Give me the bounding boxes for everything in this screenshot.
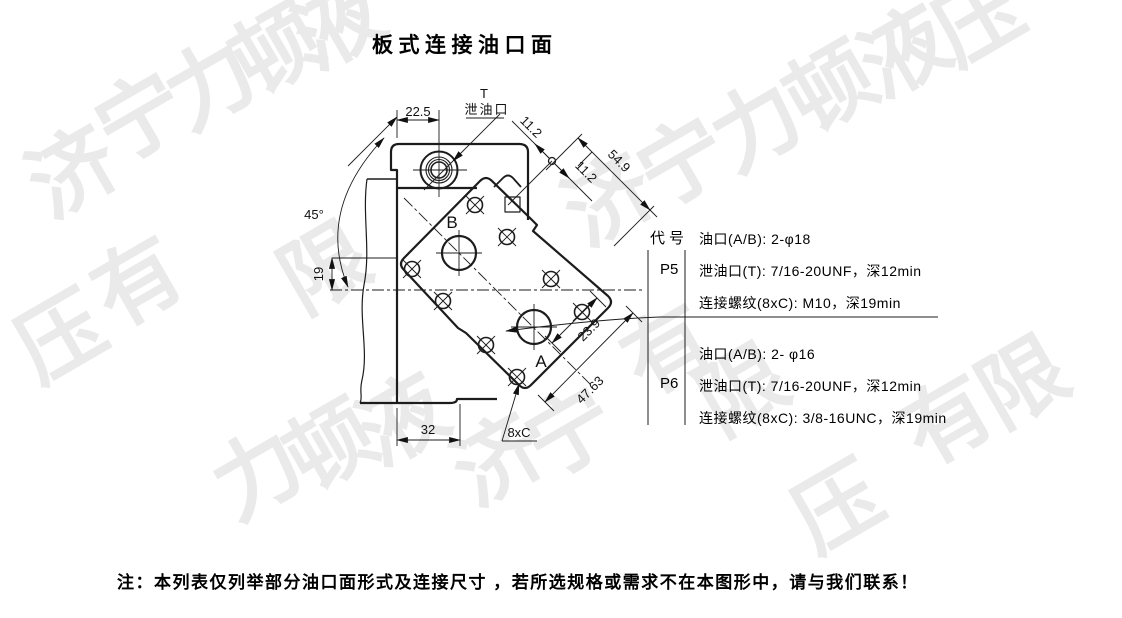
dim-19: 19 <box>311 267 326 281</box>
spec-p6-line-3: 连接螺纹(8xC): 3/8-16UNC，深19min <box>699 408 947 428</box>
spec-p6-line-2: 泄油口(T): 7/16-20UNF，深12min <box>699 376 922 396</box>
bolt-pattern-label: 8xC <box>507 425 530 440</box>
port-b-label: B <box>446 213 457 232</box>
dim-54-9: 54.9 <box>605 147 634 176</box>
spec-table-header: 代号 <box>650 227 688 248</box>
spec-p5-line-3: 连接螺纹(8xC): M10，深19min <box>699 293 901 313</box>
spec-code-p5: P5 <box>660 261 678 278</box>
port-a <box>511 304 557 350</box>
spec-code-p6: P6 <box>660 375 678 392</box>
dim-32: 32 <box>421 422 435 437</box>
port-a-label: A <box>535 352 547 371</box>
dim-22-5: 22.5 <box>405 104 430 119</box>
dim-47-63: 47.63 <box>573 373 607 407</box>
drain-port-label: 泄油口 <box>464 102 509 117</box>
dim-11-2-b: 11.2 <box>572 158 600 186</box>
dim-45deg: 45° <box>304 207 324 222</box>
technical-drawing-page: 济宁力顿液济宁力顿液压压有限力顿液济宁有限有限压 板式连接油口面 <box>0 0 1122 618</box>
dim-23-9: 23.9 <box>575 316 604 345</box>
t-port-label: T <box>480 86 488 101</box>
footer-note: 注：本列表仅列举部分油口面形式及连接尺寸 ，若所选规格或需求不在本图形中，请与我… <box>117 568 919 593</box>
spec-p6-line-1: 油口(A/B): 2- φ16 <box>699 344 815 364</box>
locating-key-slot <box>505 197 520 212</box>
port-face-drawing: T 泄油口 B A 8xC 22.5 45° 19 32 11.2 11.2 5… <box>0 0 1122 618</box>
spec-p5-line-1: 油口(A/B): 2-φ18 <box>699 229 811 249</box>
t-port <box>413 152 467 189</box>
centerlines <box>330 198 642 386</box>
dim-11-2-a: 11.2 <box>517 113 545 141</box>
spec-p5-line-2: 泄油口(T): 7/16-20UNF，深12min <box>699 261 922 281</box>
